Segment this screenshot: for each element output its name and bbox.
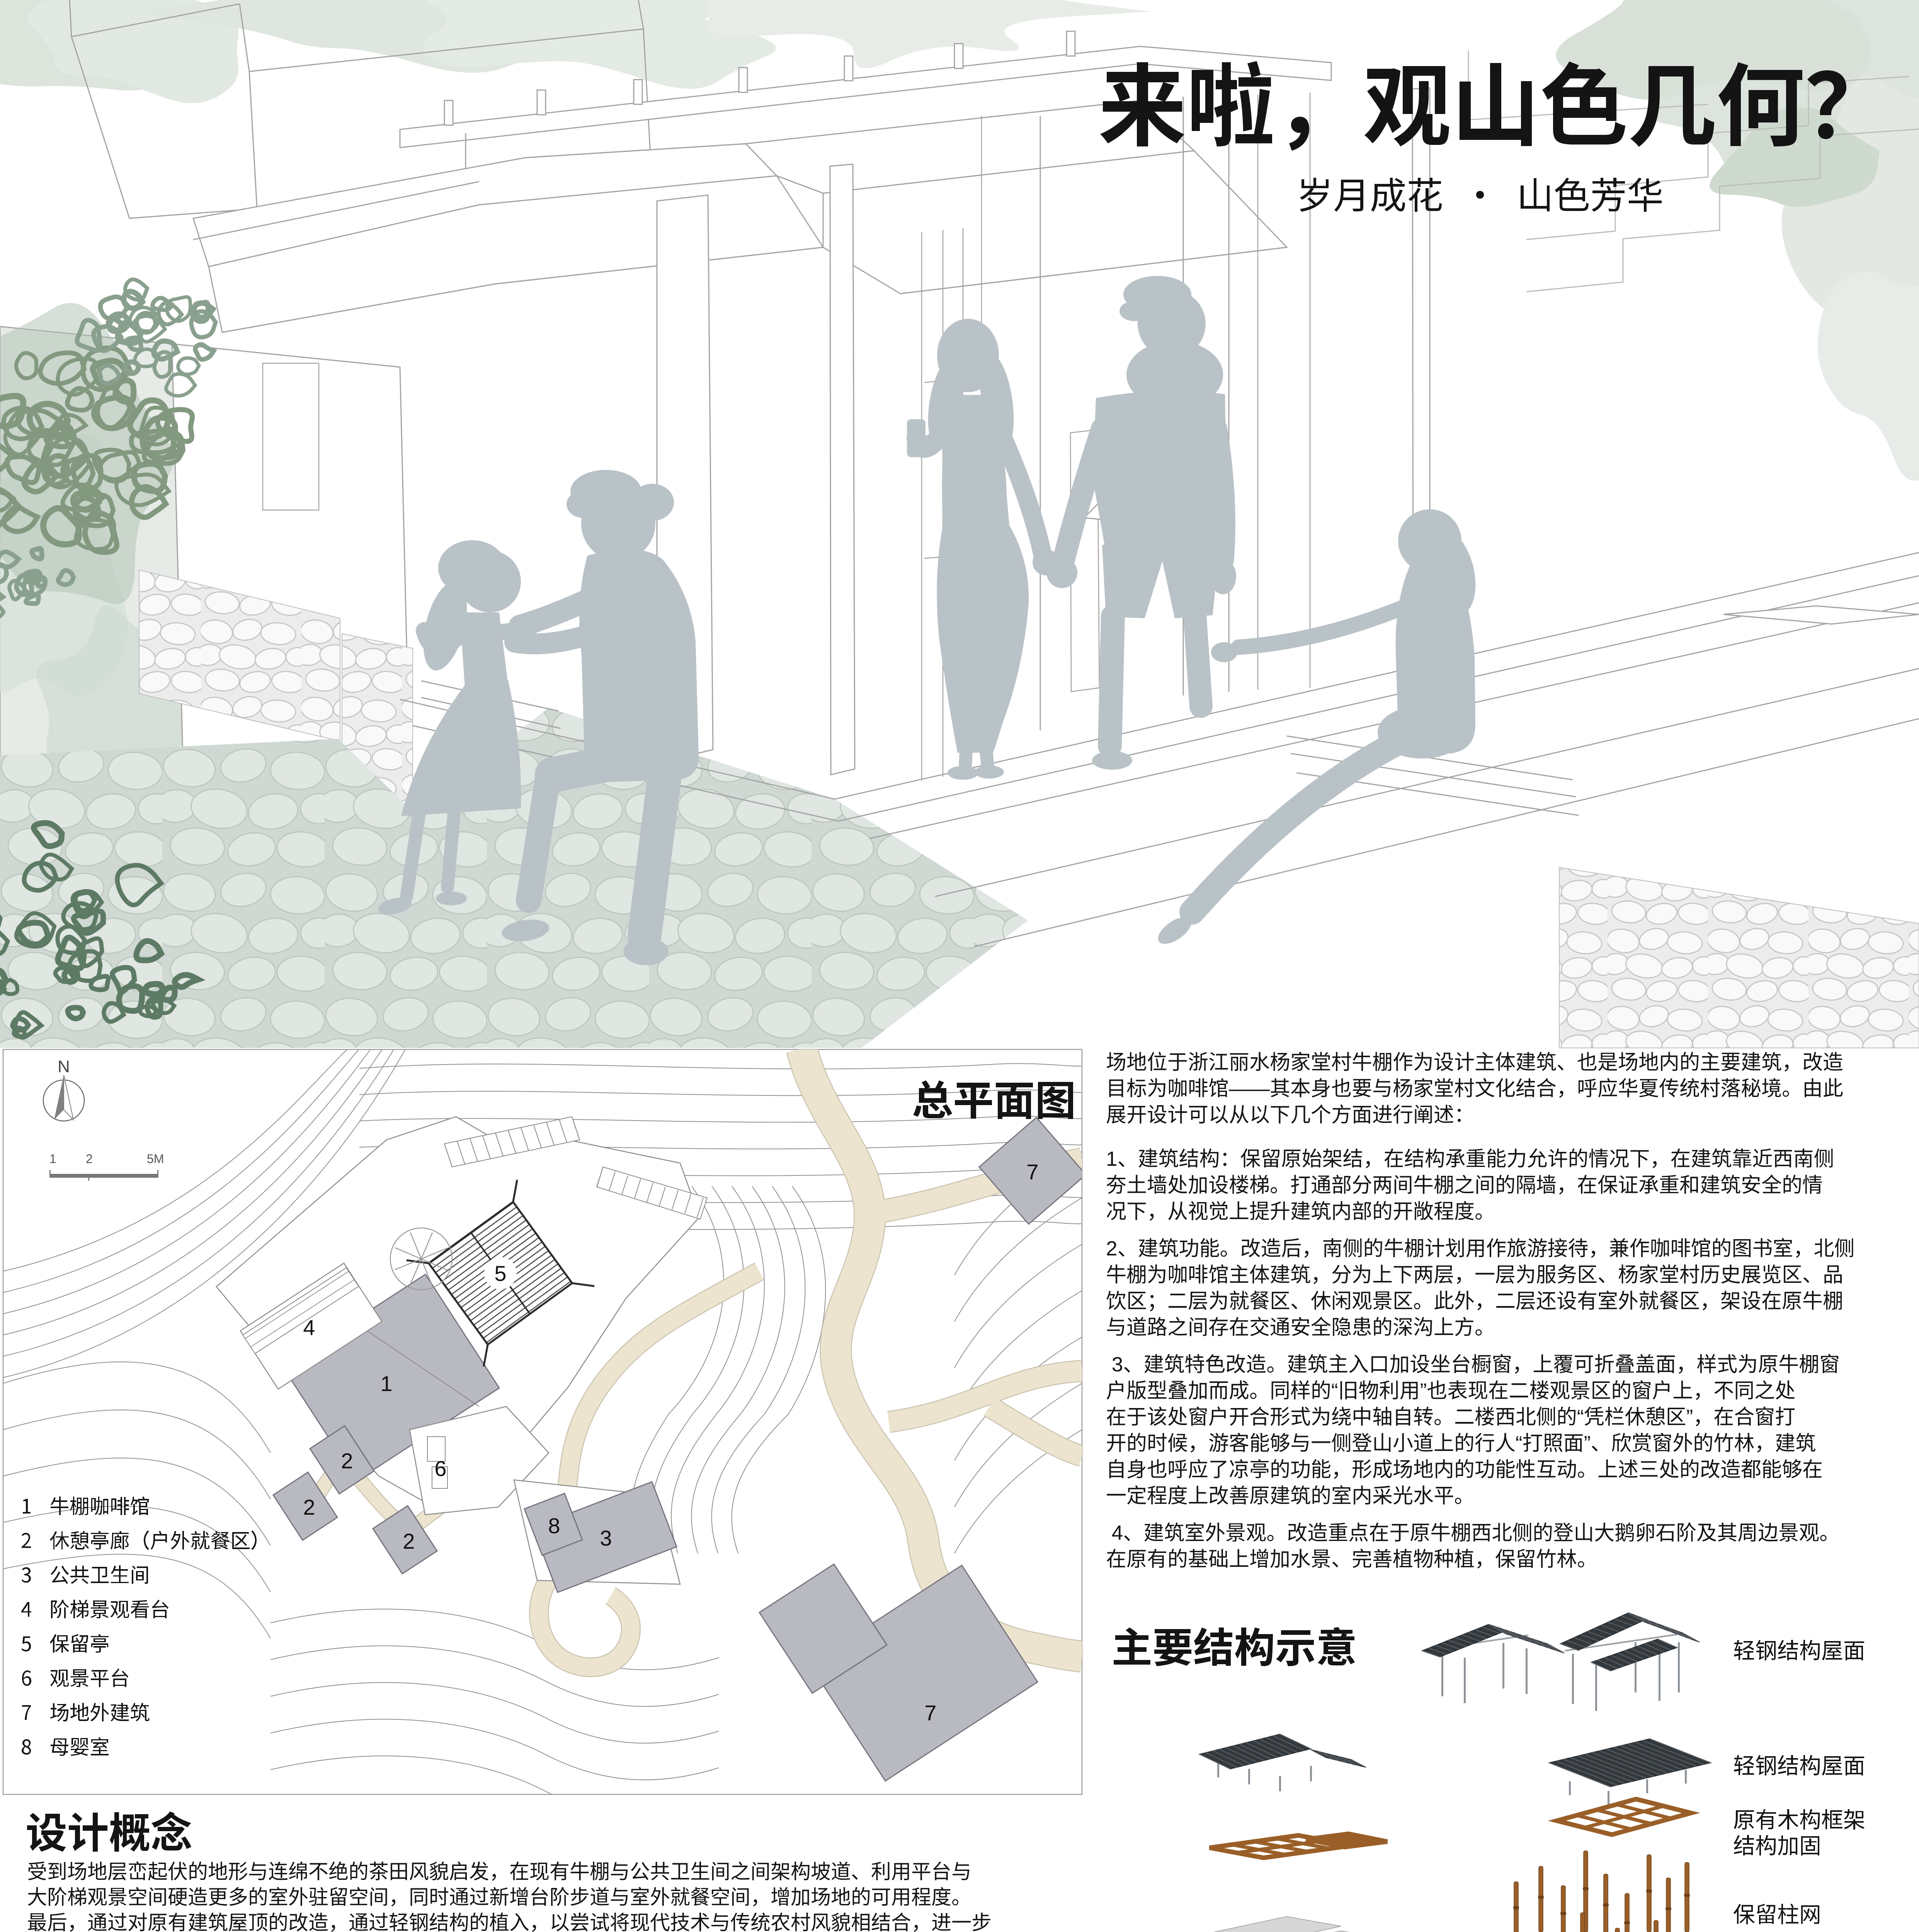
svg-text:7: 7 — [1026, 1160, 1038, 1184]
svg-text:7: 7 — [924, 1701, 936, 1725]
svg-text:2: 2 — [303, 1495, 315, 1519]
svg-text:2: 2 — [341, 1449, 353, 1473]
svg-text:5: 5 — [494, 1261, 506, 1286]
svg-text:3: 3 — [600, 1526, 612, 1550]
svg-text:1: 1 — [49, 1152, 56, 1166]
svg-text:2: 2 — [86, 1152, 93, 1166]
svg-text:4: 4 — [303, 1315, 315, 1340]
svg-text:2: 2 — [403, 1529, 415, 1553]
svg-text:N: N — [58, 1057, 70, 1076]
svg-text:5M: 5M — [147, 1152, 164, 1166]
svg-text:1: 1 — [380, 1371, 392, 1396]
svg-text:6: 6 — [434, 1456, 446, 1481]
svg-text:8: 8 — [548, 1514, 560, 1538]
